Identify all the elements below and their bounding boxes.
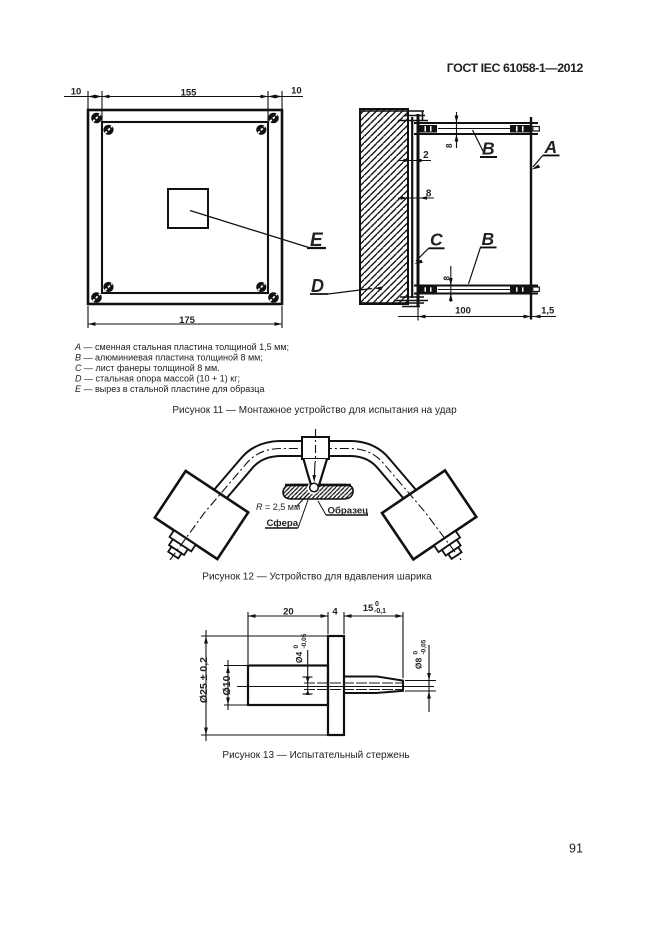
- svg-text:1,5: 1,5: [541, 305, 555, 316]
- svg-text:R = 2,5 мм: R = 2,5 мм: [256, 502, 300, 512]
- svg-text:8: 8: [445, 143, 454, 148]
- svg-text:Ø8: Ø8: [414, 658, 424, 670]
- svg-text:Ø4: Ø4: [294, 652, 304, 664]
- svg-text:ГОСТ IEC 61058-1—2012: ГОСТ IEC 61058-1—2012: [447, 61, 584, 75]
- svg-text:C: C: [430, 230, 443, 250]
- svg-text:8: 8: [426, 189, 432, 200]
- svg-text:C — лист фанеры толщиной 8 мм.: C — лист фанеры толщиной 8 мм.: [75, 363, 220, 373]
- svg-text:10: 10: [71, 87, 82, 98]
- svg-text:-0,05: -0,05: [421, 639, 428, 654]
- svg-text:0: 0: [375, 601, 379, 608]
- svg-text:-0,05: -0,05: [301, 633, 308, 648]
- svg-text:20: 20: [283, 607, 294, 618]
- svg-text:B: B: [482, 229, 495, 249]
- svg-text:175: 175: [179, 315, 196, 326]
- svg-text:A: A: [544, 137, 558, 157]
- svg-text:B — алюминиевая пластина толщи: B — алюминиевая пластина толщиной 8 мм;: [75, 353, 263, 363]
- svg-text:B: B: [482, 139, 495, 159]
- svg-text:D — стальная опора массой (10: D — стальная опора массой (10 + 1) кг;: [75, 374, 240, 384]
- svg-text:8: 8: [443, 275, 452, 280]
- svg-text:15: 15: [363, 603, 374, 614]
- svg-text:0: 0: [293, 645, 300, 649]
- svg-text:4: 4: [332, 607, 338, 618]
- svg-text:E: E: [310, 230, 324, 251]
- svg-text:Рисунок 11 — Монтажное устройс: Рисунок 11 — Монтажное устройство для ис…: [172, 405, 457, 416]
- svg-text:0: 0: [413, 651, 420, 655]
- svg-text:155: 155: [181, 88, 198, 99]
- svg-text:100: 100: [455, 305, 471, 316]
- svg-text:-0,1: -0,1: [374, 608, 386, 615]
- svg-text:91: 91: [569, 842, 583, 856]
- svg-text:D: D: [311, 276, 324, 296]
- svg-text:2: 2: [423, 150, 429, 161]
- svg-text:Ø10: Ø10: [221, 675, 233, 695]
- svg-text:A — сменная стальная пластина: A — сменная стальная пластина толщиной 1…: [74, 342, 289, 352]
- svg-text:Ø25 ± 0,2: Ø25 ± 0,2: [198, 657, 210, 703]
- svg-text:E — вырез в стальной пластине: E — вырез в стальной пластине для образц…: [75, 384, 264, 394]
- svg-text:Рисунок 13 — Испытательный сте: Рисунок 13 — Испытательный стержень: [222, 750, 409, 761]
- svg-text:Рисунок 12 — Устройство для вд: Рисунок 12 — Устройство для вдавления ша…: [202, 572, 432, 583]
- svg-text:10: 10: [291, 85, 302, 96]
